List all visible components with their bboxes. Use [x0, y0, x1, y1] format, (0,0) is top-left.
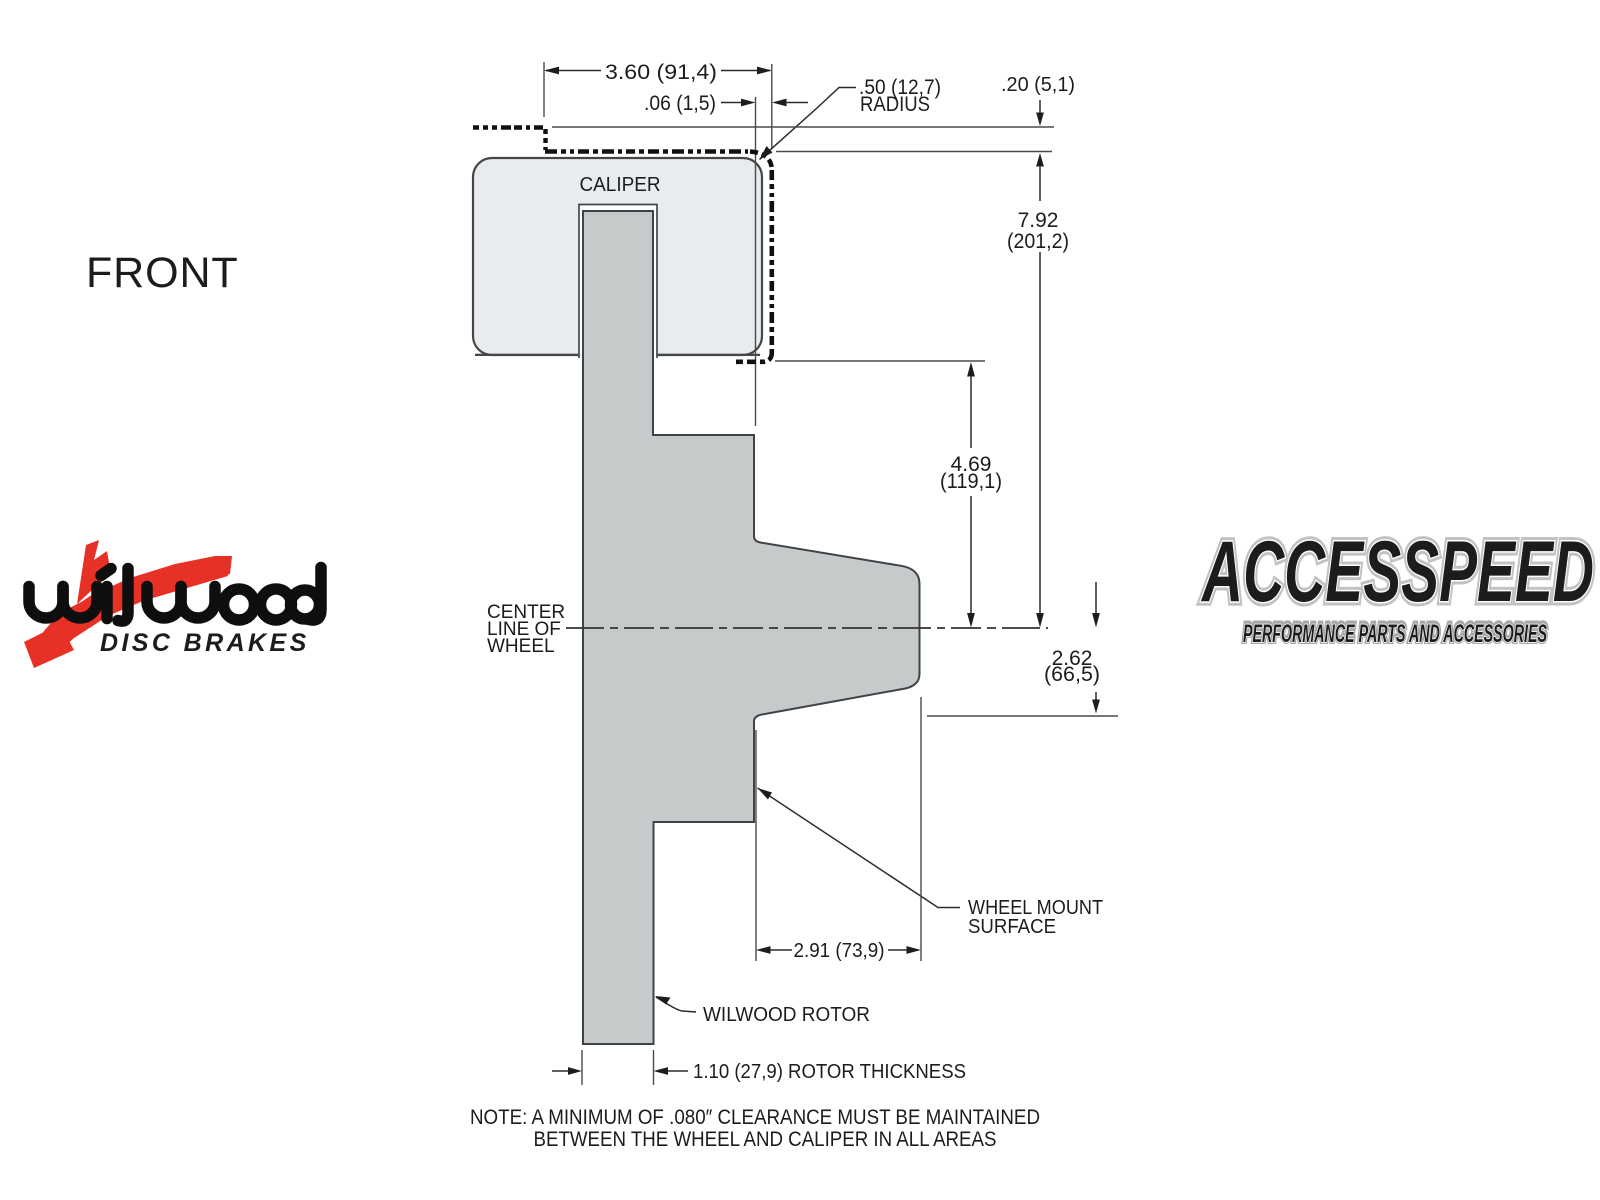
svg-text:(119,1): (119,1) — [940, 470, 1002, 493]
svg-text:2.91 (73,9): 2.91 (73,9) — [794, 940, 885, 962]
svg-text:NOTE: A MINIMUM OF .080″ CLEAR: NOTE: A MINIMUM OF .080″ CLEARANCE MUST … — [470, 1106, 1040, 1129]
svg-text:RADIUS: RADIUS — [860, 93, 930, 116]
svg-text:3.60 (91,4): 3.60 (91,4) — [605, 61, 717, 84]
svg-text:SURFACE: SURFACE — [968, 916, 1056, 938]
svg-text:CALIPER: CALIPER — [580, 174, 661, 196]
svg-text:1.10 (27,9) ROTOR THICKNESS: 1.10 (27,9) ROTOR THICKNESS — [693, 1061, 966, 1083]
svg-text:DISC BRAKES: DISC BRAKES — [100, 629, 310, 657]
svg-text:WILWOOD ROTOR: WILWOOD ROTOR — [703, 1004, 870, 1026]
svg-text:FRONT: FRONT — [86, 249, 239, 297]
svg-text:.06 (1,5): .06 (1,5) — [644, 92, 716, 115]
svg-text:WHEEL: WHEEL — [487, 636, 555, 657]
svg-text:(201,2): (201,2) — [1007, 230, 1069, 253]
svg-text:.20 (5,1): .20 (5,1) — [1001, 74, 1075, 96]
svg-text:(66,5): (66,5) — [1044, 663, 1100, 686]
svg-text:PERFORMANCE PARTS AND ACCESSOR: PERFORMANCE PARTS AND ACCESSORIES — [1243, 620, 1547, 648]
svg-text:ACCESSPEED: ACCESSPEED — [1201, 524, 1594, 620]
svg-text:7.92: 7.92 — [1018, 209, 1059, 232]
svg-text:BETWEEN THE WHEEL AND CALIPER: BETWEEN THE WHEEL AND CALIPER IN ALL ARE… — [534, 1128, 997, 1151]
